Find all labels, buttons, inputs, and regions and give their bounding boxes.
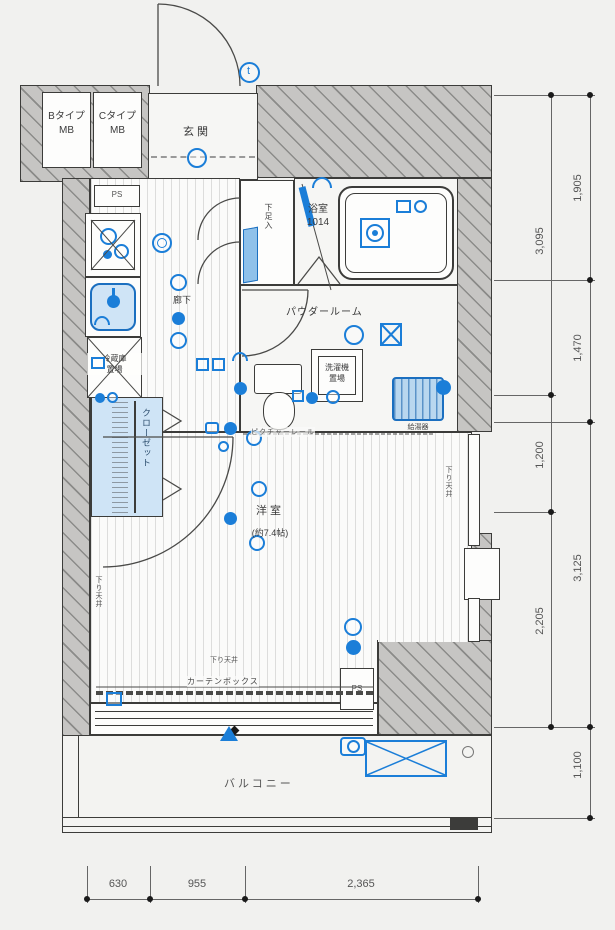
dim-right-outer-line [590, 95, 591, 818]
dim-label-955: 955 [167, 878, 227, 890]
washer-line2: 置場 [311, 373, 363, 384]
right-window-upper [468, 434, 480, 546]
bathroom-name: 浴室 [296, 203, 340, 216]
dim-dot [587, 815, 593, 821]
dim-dot [242, 896, 248, 902]
dim-label-2205: 2,205 [534, 591, 546, 651]
dropped-ceiling-right-label: 下り天井 [443, 466, 453, 498]
dim-tick-395 [494, 395, 556, 396]
dim-tick-95 [494, 95, 595, 96]
bathroom-size: 1014 [296, 216, 340, 229]
dim-dot [147, 896, 153, 902]
picture-rail-label: ピクチャーレール [251, 427, 315, 437]
ps-top-label: PS [94, 190, 140, 199]
hall-small-circle-icon [218, 441, 229, 452]
dim-label-1905: 1,905 [572, 158, 584, 218]
entrance-label: 玄関 [183, 123, 211, 139]
stove-inner [91, 220, 135, 270]
direction-triangle-icon [220, 726, 238, 741]
dim-label-2365: 2,365 [331, 878, 391, 890]
balcony-dark-block [450, 817, 478, 830]
dim-bottom-line [87, 899, 478, 900]
bath-faucet-box-icon [396, 200, 411, 213]
mb-c-line1: Cタイプ [93, 110, 142, 124]
balcony-label: バルコニー [224, 775, 294, 791]
washer-outlet-dot-icon [306, 392, 318, 404]
main-room-floor-lower [90, 640, 378, 703]
room-label: 洋室 (約7.4帖) [230, 500, 310, 544]
dim-tick-512 [494, 512, 556, 513]
stove-burner-icon-2 [114, 244, 129, 259]
tv-outlet-top-icon [344, 618, 362, 636]
right-bumpout [464, 548, 500, 600]
heater-knob-icon [436, 380, 451, 395]
dim-dot [587, 724, 593, 730]
dim-dot [548, 724, 554, 730]
tv-outlet-bottom-icon [346, 640, 361, 655]
ac-unit-box [365, 740, 447, 777]
corridor-sensor-icon [170, 274, 187, 291]
corridor-cross-circle-icon [170, 332, 187, 349]
wall-bottom-right-block [378, 640, 492, 735]
curtain-box-label: カーテンボックス [187, 676, 259, 687]
bath-faucet-circle-icon [414, 200, 427, 213]
dim-label-1470: 1,470 [572, 318, 584, 378]
bottom-window-line1 [95, 711, 373, 712]
dim-label-630: 630 [88, 878, 148, 890]
corridor-light-inner-icon [157, 238, 167, 248]
dim-tick-280 [494, 280, 595, 281]
dim-dot [587, 277, 593, 283]
ps-bottom-label: PS [340, 684, 374, 693]
dim-dot [475, 896, 481, 902]
toilet-bowl [263, 392, 295, 430]
dim-tick-422 [494, 422, 595, 423]
hall-doorway-dot-icon [224, 422, 237, 435]
bath-fan-dot-icon [372, 230, 378, 236]
balcony-rail-line1 [62, 817, 492, 818]
closet-outlet-icon [95, 393, 105, 403]
floorplan-page: { "plan": { "mb_left": {"line1": "Bタイプ",… [0, 0, 615, 930]
hall-doorway-sym-icon [205, 422, 219, 434]
room-circled-sym-icon [251, 481, 267, 497]
dim-right-inner-line [551, 95, 552, 727]
powder-dot-icon [234, 382, 247, 395]
waterproof-outlet-circle-icon [347, 740, 360, 753]
bathroom-label: 浴室 1014 [296, 203, 340, 229]
corridor-label: 廊下 [173, 293, 191, 306]
dim-tick-818 [494, 818, 595, 819]
door-symbol-circle: t [239, 62, 260, 83]
right-window-lower [468, 598, 480, 642]
washer-outlet-box-icon [292, 390, 304, 402]
door-symbol-letter: t [247, 65, 250, 77]
mb-b-label: Bタイプ MB [42, 110, 91, 138]
mb-b-line2: MB [42, 124, 91, 138]
powder-ceiling-circle-icon [344, 325, 364, 345]
dim-label-1200: 1,200 [534, 425, 546, 485]
dim-label-3095: 3,095 [534, 211, 546, 271]
switch-panel-icon-1 [196, 358, 209, 371]
dim-dot [84, 896, 90, 902]
dim-label-3125: 3,125 [572, 538, 584, 598]
washer-circle-icon [326, 390, 340, 404]
dim-dot [548, 92, 554, 98]
bottom-window-line2 [95, 718, 373, 719]
closet-label: クローゼット [140, 408, 153, 468]
washer-line1: 洗濯機 [311, 362, 363, 373]
dropped-ceiling-left-label: 下り天井 [93, 576, 103, 608]
water-heater-label: 給湯器 [392, 422, 444, 432]
wall-right-column [456, 178, 492, 432]
dim-dot [587, 92, 593, 98]
balcony-rail-line2 [62, 826, 492, 827]
closet-rod [134, 401, 136, 513]
faucet-spout-icon [112, 288, 115, 298]
mb-b-line1: Bタイプ [42, 110, 91, 124]
room-sw-outlet-icon [106, 692, 122, 706]
washer-label: 洗濯機 置場 [311, 362, 363, 384]
dim-label-1100: 1,100 [572, 735, 584, 795]
balcony-left-rail [78, 735, 79, 817]
wall-top-band [256, 85, 492, 178]
shoe-box-label: 下足入 [263, 203, 274, 230]
entrance-floor-circle-icon [187, 148, 207, 168]
balcony-drain-circle [462, 746, 474, 758]
stove-burner-icon-1 [100, 228, 117, 245]
mb-c-line2: MB [93, 124, 142, 138]
stove-burner-icon-3 [103, 250, 112, 259]
dim-dot [548, 509, 554, 515]
shoe-mirror [243, 227, 258, 284]
dim-dot [587, 419, 593, 425]
closet-shelf-strip [112, 401, 128, 513]
fridge-outlet-icon [91, 357, 105, 369]
dim-tick-727 [494, 727, 595, 728]
dim-dot [548, 392, 554, 398]
corridor-dot-icon [172, 312, 185, 325]
mb-c-label: Cタイプ MB [93, 110, 142, 138]
powder-room-label: パウダールーム [286, 303, 363, 318]
closet-switch-icon [107, 392, 118, 403]
switch-panel-icon-2 [212, 358, 225, 371]
room-size: (約7.4帖) [230, 522, 310, 544]
dropped-ceiling-bottom-label: 下り天井 [210, 655, 238, 665]
room-name: 洋室 [230, 500, 310, 522]
